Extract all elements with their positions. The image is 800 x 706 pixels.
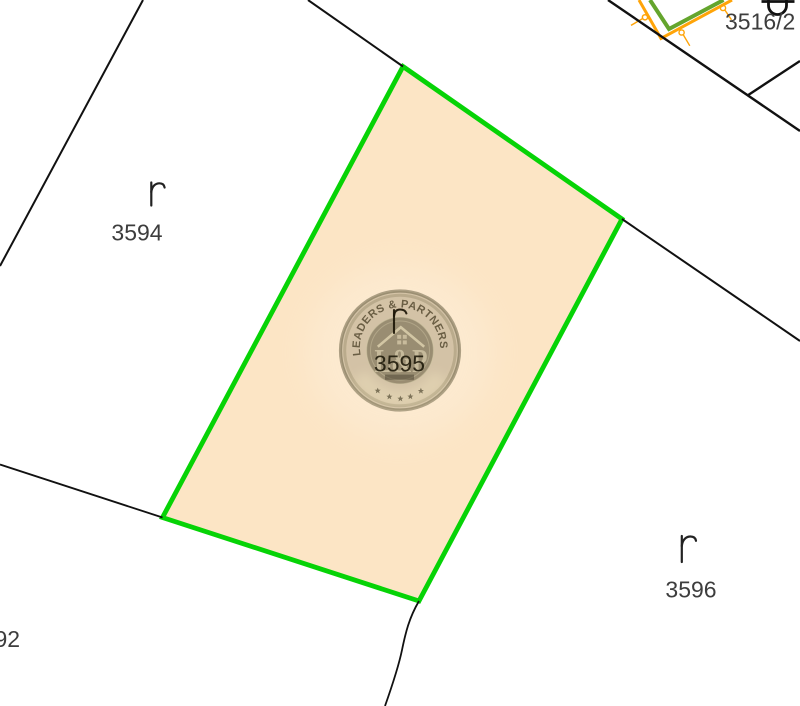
svg-text:3594: 3594 (111, 220, 162, 246)
svg-text:3516/2: 3516/2 (725, 9, 795, 35)
svg-text:3596: 3596 (665, 577, 716, 603)
svg-text:92: 92 (0, 626, 20, 652)
svg-text:3595: 3595 (374, 351, 425, 377)
